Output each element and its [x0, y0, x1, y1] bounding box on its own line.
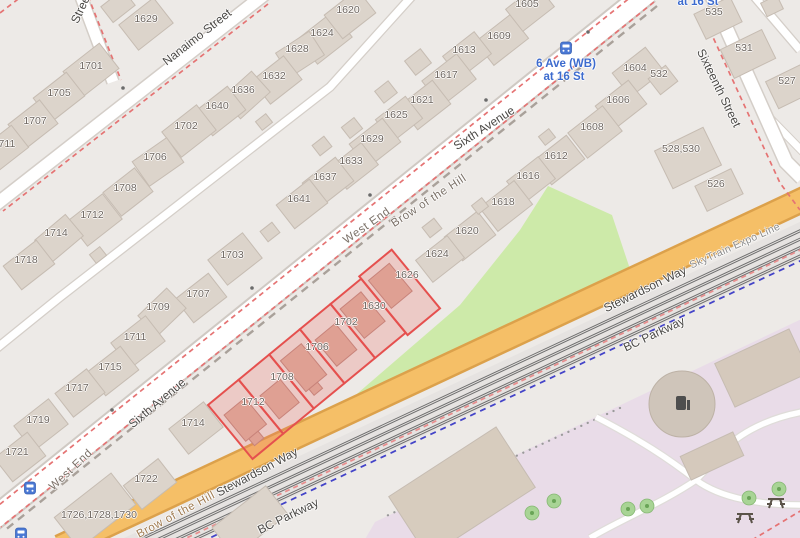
tree-icon — [530, 511, 534, 515]
bus-stop-icon — [561, 42, 572, 54]
map-viewport[interactable]: 1629170117051707171116241628163216361640… — [0, 0, 800, 538]
tree-icon — [626, 507, 630, 511]
tree-icon — [747, 496, 751, 500]
bus-stop-icon — [25, 482, 36, 494]
tree-icon — [777, 487, 781, 491]
tree-icon — [645, 504, 649, 508]
map-canvas — [0, 0, 800, 538]
bus-stop-icon — [16, 528, 27, 538]
tree-icon — [552, 499, 556, 503]
